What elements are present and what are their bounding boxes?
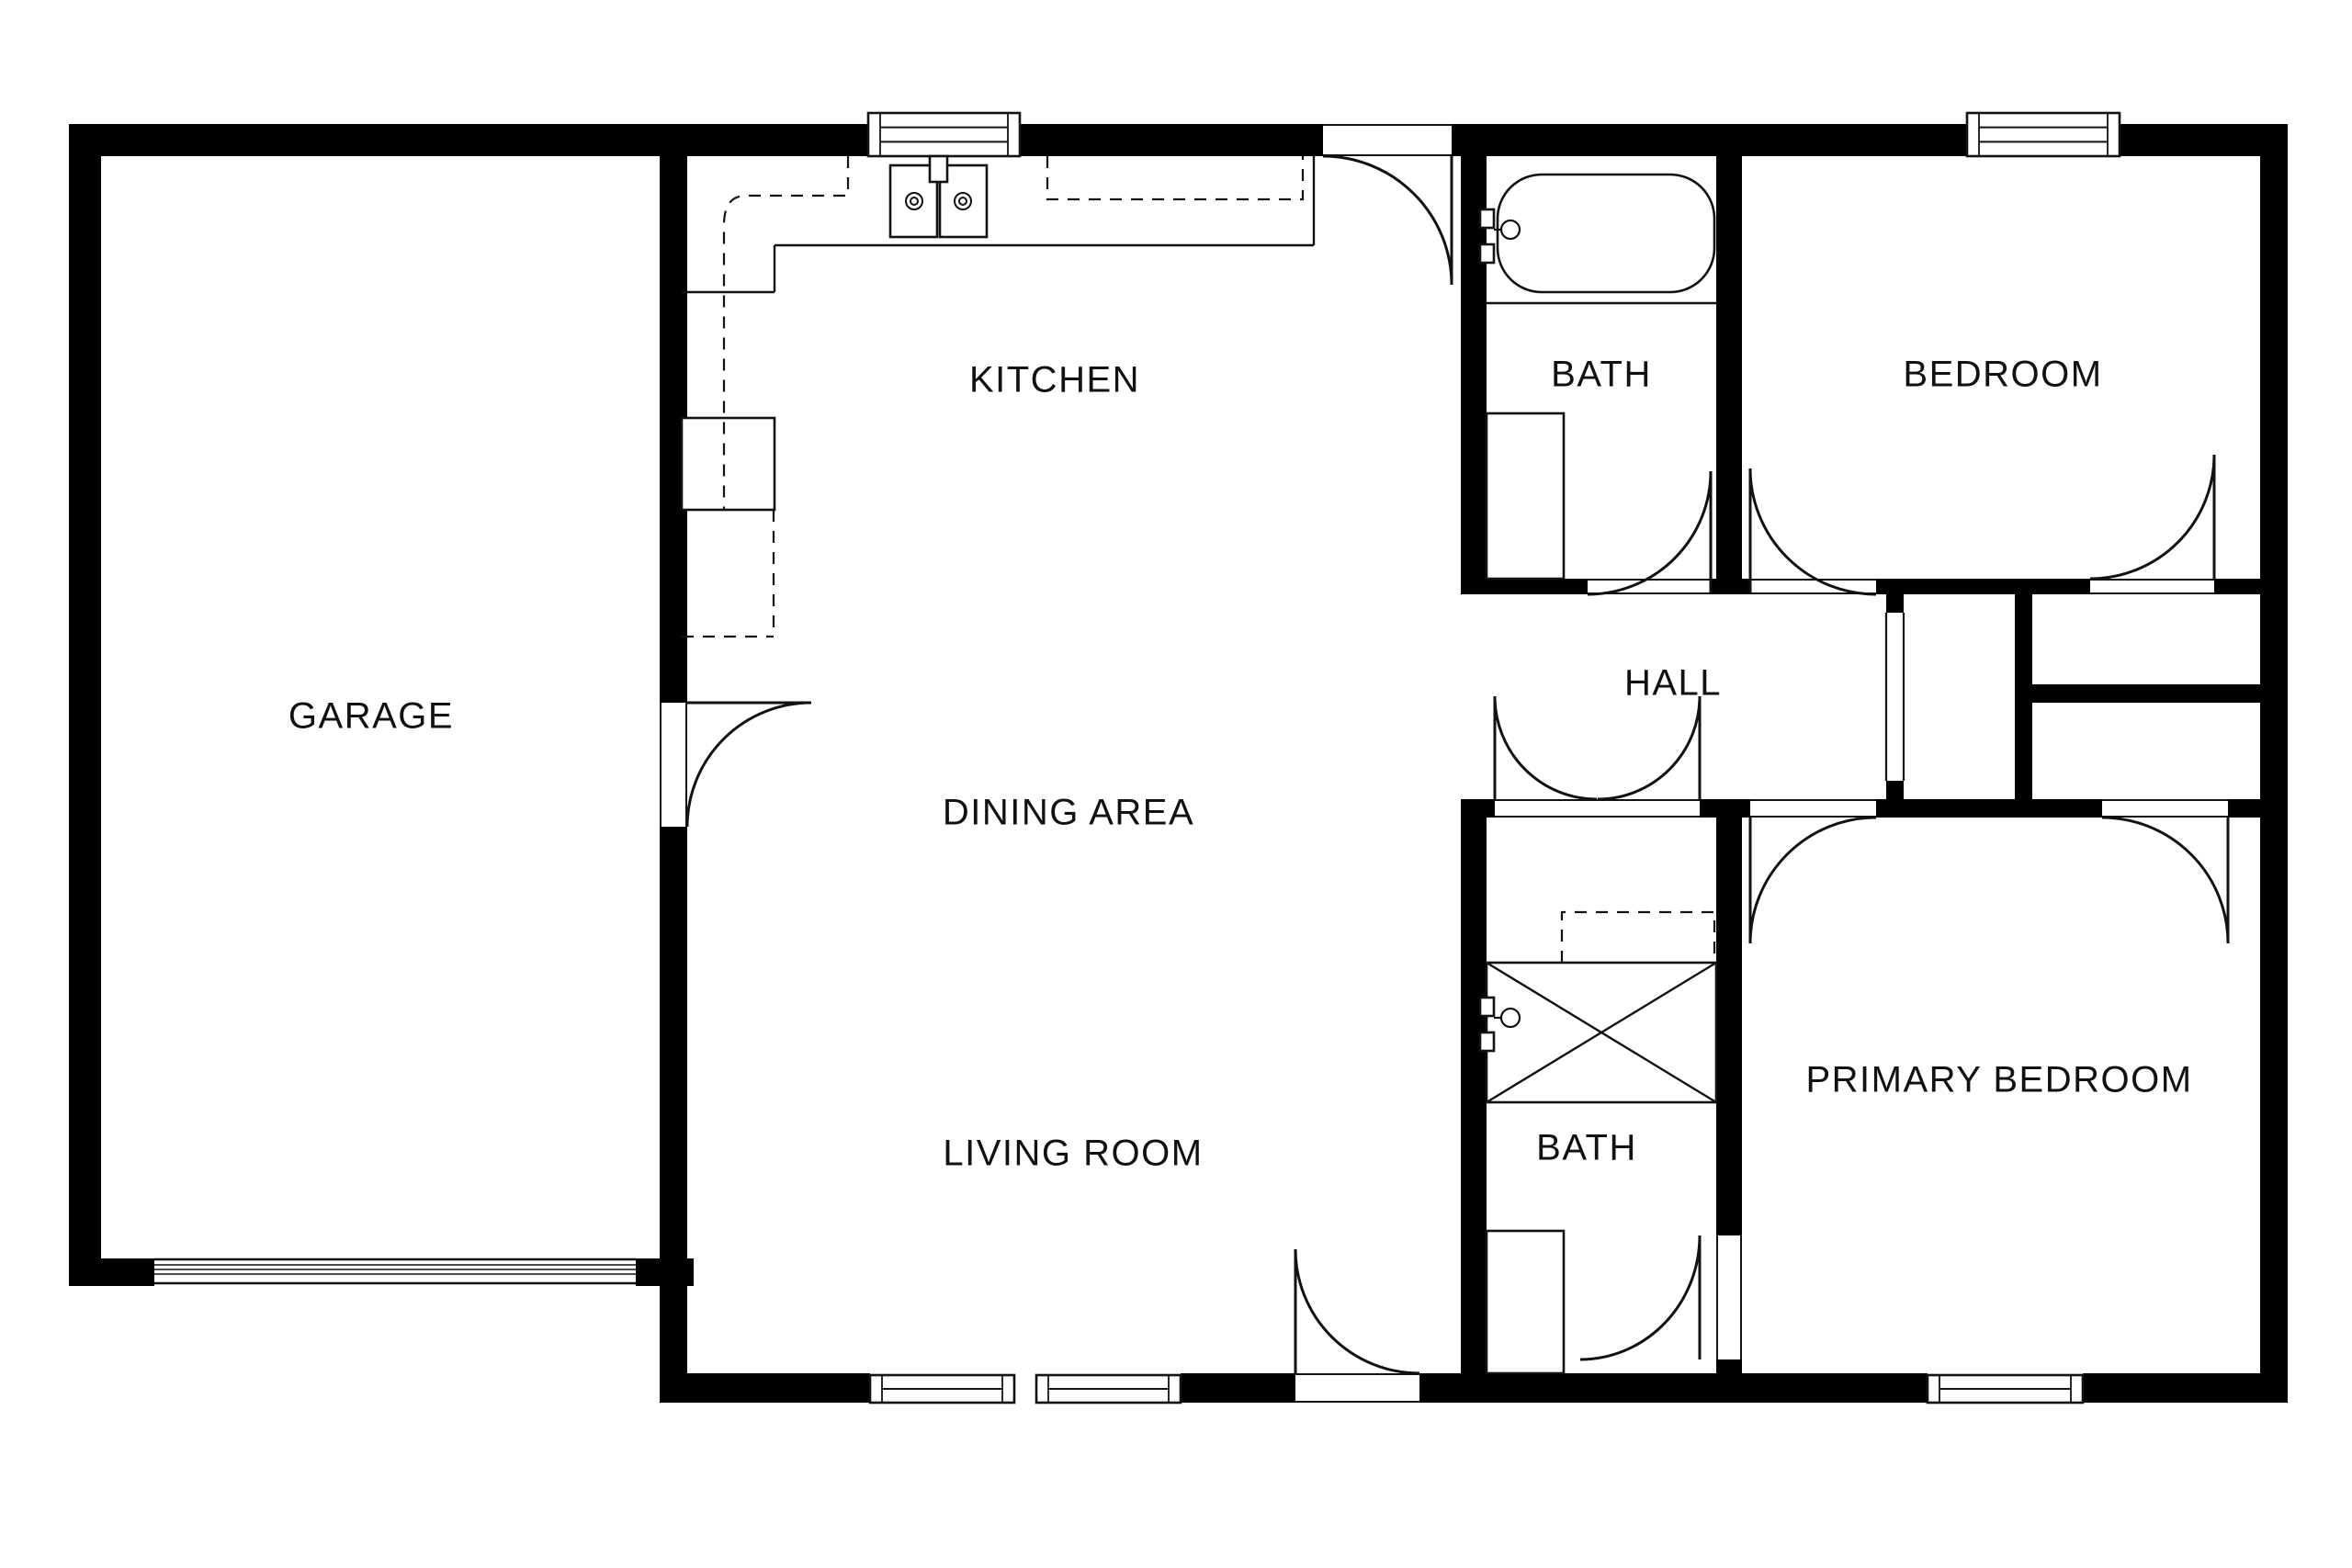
sink-drain-right-inner bbox=[959, 197, 967, 205]
bedroom-window bbox=[1967, 113, 2120, 156]
back-door-opening bbox=[1323, 124, 1452, 156]
floor-plan-page: GARAGEKITCHENBATHBEDROOMHALLDINING AREAL… bbox=[0, 0, 2352, 1568]
bath2-vanity bbox=[1487, 1231, 1564, 1373]
room-label-primary: PRIMARY BEDROOM bbox=[1805, 1060, 2192, 1100]
room-label-bath2: BATH bbox=[1536, 1128, 1637, 1168]
room-label-bedroom: BEDROOM bbox=[1903, 355, 2102, 395]
wall-bath2-right-lower bbox=[1716, 1359, 1742, 1373]
kitchen-window bbox=[868, 113, 1020, 156]
bedroom-closet-opening bbox=[2090, 579, 2214, 594]
wall-closet-stub-bottom bbox=[1886, 781, 1904, 799]
tub-faucet-bracket-a bbox=[1480, 209, 1494, 228]
tub-spout-knob bbox=[1501, 220, 1520, 239]
primary-closet-opening bbox=[2102, 799, 2228, 818]
wall-closet-mid bbox=[2015, 594, 2032, 799]
primary-door-opening bbox=[1750, 799, 1876, 818]
shower-faucet-bracket-a bbox=[1480, 998, 1494, 1016]
wall-primary-top bbox=[1876, 799, 2102, 818]
room-label-bath1: BATH bbox=[1551, 355, 1652, 395]
wall-bottom-center bbox=[1419, 1373, 1928, 1403]
kitchen-faucet bbox=[930, 156, 947, 182]
wall-bath1-right bbox=[1716, 156, 1742, 594]
shower-faucet-bracket-b bbox=[1480, 1032, 1494, 1051]
wall-garage-bottom-left bbox=[69, 1258, 154, 1286]
wall-hall-top-mid bbox=[1711, 579, 1750, 594]
wall-bath2-right-upper bbox=[1716, 818, 1742, 1235]
wall-bottom-primary-right bbox=[2083, 1373, 2288, 1403]
wall-top-garage-kitchen bbox=[69, 124, 868, 156]
living-door-opening bbox=[1295, 1373, 1419, 1403]
wall-bottom-living-left bbox=[660, 1373, 870, 1403]
wall-bath1-bottom bbox=[1461, 579, 1588, 594]
wall-top-kitchen bbox=[1020, 124, 1323, 156]
wall-bath2-left bbox=[1461, 818, 1487, 1373]
hall-double-door-opening bbox=[1495, 799, 1700, 818]
sink-drain-left-inner bbox=[910, 197, 918, 205]
floor-plan: GARAGEKITCHENBATHBEDROOMHALLDINING AREAL… bbox=[0, 0, 2352, 1568]
stove bbox=[682, 418, 775, 510]
shower-spout-knob bbox=[1501, 1009, 1520, 1027]
wall-top-bath-bedroom bbox=[1452, 124, 1967, 156]
bath-vanity bbox=[1487, 413, 1564, 579]
plan-background bbox=[0, 0, 2352, 1568]
wall-primary-top-right bbox=[2228, 799, 2260, 818]
wall-hall-bottom-mid bbox=[1700, 799, 1750, 818]
room-label-hall: HALL bbox=[1624, 663, 1722, 704]
wall-left-exterior bbox=[69, 124, 101, 1286]
bath2-door-opening bbox=[1716, 1235, 1742, 1359]
wall-bedroom-bottom bbox=[1876, 579, 2090, 594]
wall-right-exterior bbox=[2260, 124, 2288, 1403]
room-label-living: LIVING ROOM bbox=[943, 1134, 1203, 1174]
wall-closet-divider bbox=[2032, 684, 2260, 703]
bathtub bbox=[1498, 175, 1714, 292]
room-label-garage: GARAGE bbox=[288, 696, 454, 737]
wall-bedroom-bottom-right bbox=[2214, 579, 2260, 594]
wall-bottom-living-mid bbox=[1181, 1373, 1295, 1403]
wall-hall-bottom-left-jamb bbox=[1461, 799, 1495, 818]
room-label-dining: DINING AREA bbox=[943, 793, 1194, 833]
tub-faucet-bracket-b bbox=[1480, 244, 1494, 263]
garage-entry-opening bbox=[660, 703, 687, 827]
wall-garage-right-lower bbox=[660, 827, 687, 1373]
wall-closet-stub-top bbox=[1886, 594, 1904, 613]
room-label-kitchen: KITCHEN bbox=[969, 360, 1140, 400]
